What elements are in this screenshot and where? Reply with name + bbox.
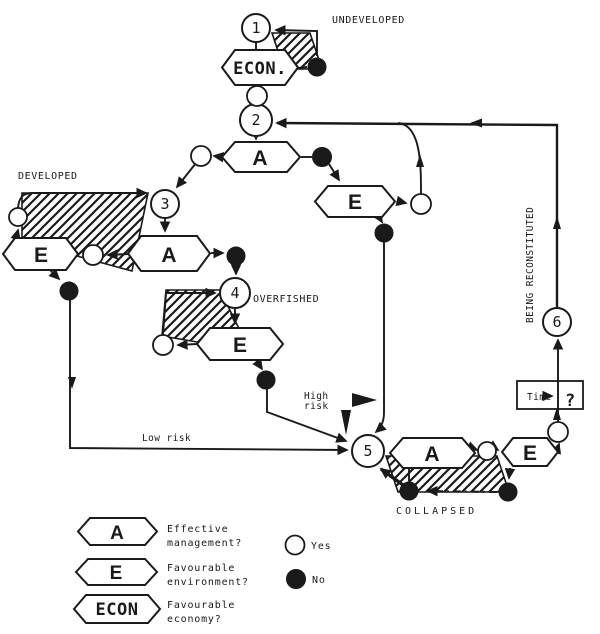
environment-hexagon-label: E [233, 334, 247, 357]
time-question-mark: ? [565, 391, 575, 411]
edge-management2-yes [214, 156, 222, 157]
time-label: Time [527, 392, 551, 403]
legend-yes-label: Yes [311, 541, 331, 552]
node-number-4: 4 [230, 284, 239, 302]
no-circle [227, 247, 245, 265]
edge-environment2-yes [397, 201, 406, 203]
legend-text: Favourable [167, 563, 235, 574]
undeveloped-label: UNDEVELOPED [332, 15, 405, 26]
no-circle [60, 282, 78, 300]
legend-text: environment? [167, 577, 249, 588]
econ-hexagon-label: ECON. [233, 59, 287, 79]
legend-item-management: A Effective management? [78, 518, 242, 549]
up-arrowhead-icon [553, 216, 561, 229]
legend-item-econ: ECON Favourable economy? [74, 595, 235, 625]
high-risk-right-arrow-icon [352, 393, 377, 407]
edge-management3-yes [108, 254, 128, 255]
no-circle [400, 482, 418, 500]
state-node-5: 5 [352, 435, 384, 467]
environment-hexagon-label: E [34, 244, 48, 267]
legend-symbol-e: E [110, 563, 123, 584]
no-circle [257, 371, 275, 389]
legend: A Effective management? E Favourable env… [74, 518, 331, 625]
no-circle [308, 58, 326, 76]
edge-environment4-yes [178, 344, 197, 345]
edge-no-environment2 [329, 164, 339, 180]
decision-environment-2: E [315, 186, 395, 217]
state-node-1: 1 [242, 14, 270, 42]
yes-circle [247, 86, 267, 106]
time-delay-box: Time ? [517, 381, 583, 411]
yes-circle [286, 536, 305, 555]
edge-environment5-no [509, 468, 510, 478]
management-hexagon-label: A [252, 147, 267, 170]
low-risk-label: Low risk [142, 433, 191, 444]
left-arrowhead-icon [470, 119, 482, 128]
no-circle [287, 570, 306, 589]
legend-symbol-econ: ECON [96, 600, 139, 620]
node-number-2: 2 [251, 111, 260, 129]
edge-environment4-no [256, 360, 262, 369]
yes-circle [411, 194, 431, 214]
node-number-3: 3 [160, 195, 169, 213]
environment-hexagon-label: E [523, 442, 537, 465]
state-node-4: 4 [220, 278, 250, 308]
decision-environment-4: E [197, 328, 283, 360]
edge-yes-node3 [177, 163, 196, 187]
yes-circle [9, 208, 27, 226]
yes-circle [83, 245, 103, 265]
edge-environment3-no [50, 270, 59, 279]
decision-environment-3: E [3, 238, 78, 270]
state-node-3: 3 [151, 190, 179, 218]
legend-yes: Yes [286, 536, 332, 555]
state-node-2: 2 [240, 104, 272, 136]
edge-econ-no [298, 67, 307, 68]
fishery-state-flow-diagram: ECON. A E E A E A E [0, 0, 600, 634]
being-reconstituted-label: BEING RECONSTITUTED [525, 207, 536, 323]
collapsed-label: COLLAPSED [396, 506, 477, 517]
edge-environment3-yes [16, 230, 18, 238]
overfished-label: OVERFISHED [253, 294, 319, 305]
state-node-6: 6 [543, 308, 571, 336]
environment-hexagon-label: E [348, 191, 362, 214]
legend-text: management? [167, 538, 242, 549]
legend-symbol-a: A [110, 523, 124, 544]
decision-management-3: A [128, 236, 210, 271]
legend-item-environment: E Favourable environment? [76, 559, 249, 588]
high-risk-down-arrow-icon [341, 410, 351, 435]
node-number-1: 1 [251, 19, 260, 37]
management-hexagon-label: A [161, 244, 176, 267]
edge-yes-return-node2 [398, 123, 421, 194]
decision-management-2: A [222, 142, 300, 172]
node-number-6: 6 [552, 313, 561, 331]
legend-text: Effective [167, 524, 228, 535]
yes-circle [478, 442, 496, 460]
developed-label: DEVELOPED [18, 171, 78, 182]
high-risk-label-line2: risk [304, 401, 328, 412]
no-circle [375, 224, 393, 242]
decision-environment-5: E [502, 438, 558, 466]
legend-no: No [287, 570, 326, 589]
yes-circle [153, 335, 173, 355]
up-arrowhead-icon [416, 154, 424, 167]
node-number-5: 5 [363, 442, 372, 460]
legend-no-label: No [312, 575, 326, 586]
no-circle [313, 148, 332, 167]
diagram-canvas: ECON. A E E A E A E [0, 0, 600, 634]
yes-circle [191, 146, 211, 166]
management-hexagon-label: A [424, 443, 439, 466]
legend-text: Favourable [167, 600, 235, 611]
legend-text: economy? [167, 614, 222, 625]
yes-circle [548, 422, 568, 442]
decision-econ-1: ECON. [222, 50, 298, 85]
decision-management-5: A [390, 438, 475, 468]
no-circle [499, 483, 517, 501]
high-risk-pointer [341, 393, 377, 435]
edge-no-node5 [376, 242, 384, 432]
edge-environment5-yes [557, 444, 559, 450]
